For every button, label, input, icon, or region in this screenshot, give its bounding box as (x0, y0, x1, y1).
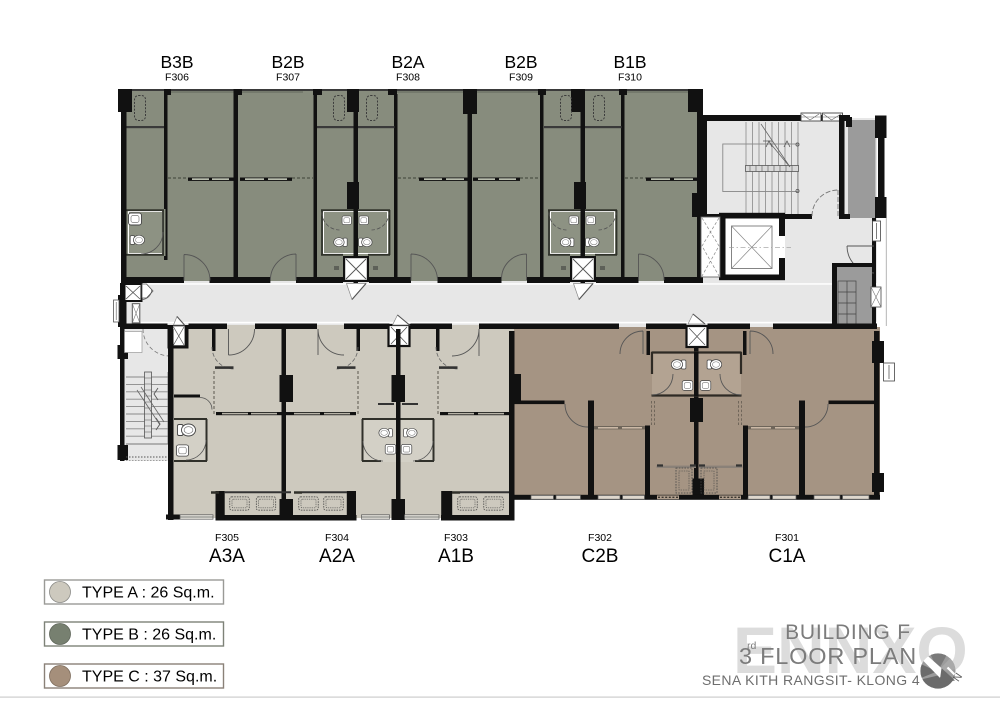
svg-text:F310: F310 (618, 72, 642, 84)
svg-text:rd: rd (747, 640, 756, 652)
svg-text:3 FLOOR PLAN: 3 FLOOR PLAN (739, 643, 917, 669)
svg-text:F306: F306 (165, 72, 189, 84)
svg-text:C1A: C1A (769, 546, 806, 567)
svg-text:B2B: B2B (271, 52, 304, 72)
svg-text:F303: F303 (444, 532, 468, 544)
svg-text:F301: F301 (775, 532, 799, 544)
svg-text:A1B: A1B (438, 546, 474, 567)
svg-text:B2A: B2A (391, 52, 424, 72)
svg-text:A3A: A3A (209, 546, 245, 567)
svg-text:TYPE B : 26 Sq.m.: TYPE B : 26 Sq.m. (82, 627, 216, 644)
svg-text:C2B: C2B (582, 546, 619, 567)
svg-text:B2B: B2B (504, 52, 537, 72)
svg-text:TYPE C : 37 Sq.m.: TYPE C : 37 Sq.m. (82, 669, 217, 686)
svg-text:F304: F304 (325, 532, 349, 544)
svg-text:F309: F309 (509, 72, 533, 84)
svg-text:B3B: B3B (160, 52, 193, 72)
svg-text:F307: F307 (276, 72, 300, 84)
svg-text:F308: F308 (396, 72, 420, 84)
svg-text:SENA KITH RANGSIT- KLONG 4: SENA KITH RANGSIT- KLONG 4 (702, 672, 920, 688)
svg-text:F305: F305 (215, 532, 239, 544)
svg-text:F302: F302 (588, 532, 612, 544)
svg-text:B1B: B1B (613, 52, 646, 72)
svg-text:TYPE A : 26 Sq.m.: TYPE A : 26 Sq.m. (82, 585, 215, 602)
svg-text:A2A: A2A (319, 546, 355, 567)
svg-text:BUILDING F: BUILDING F (785, 621, 911, 644)
